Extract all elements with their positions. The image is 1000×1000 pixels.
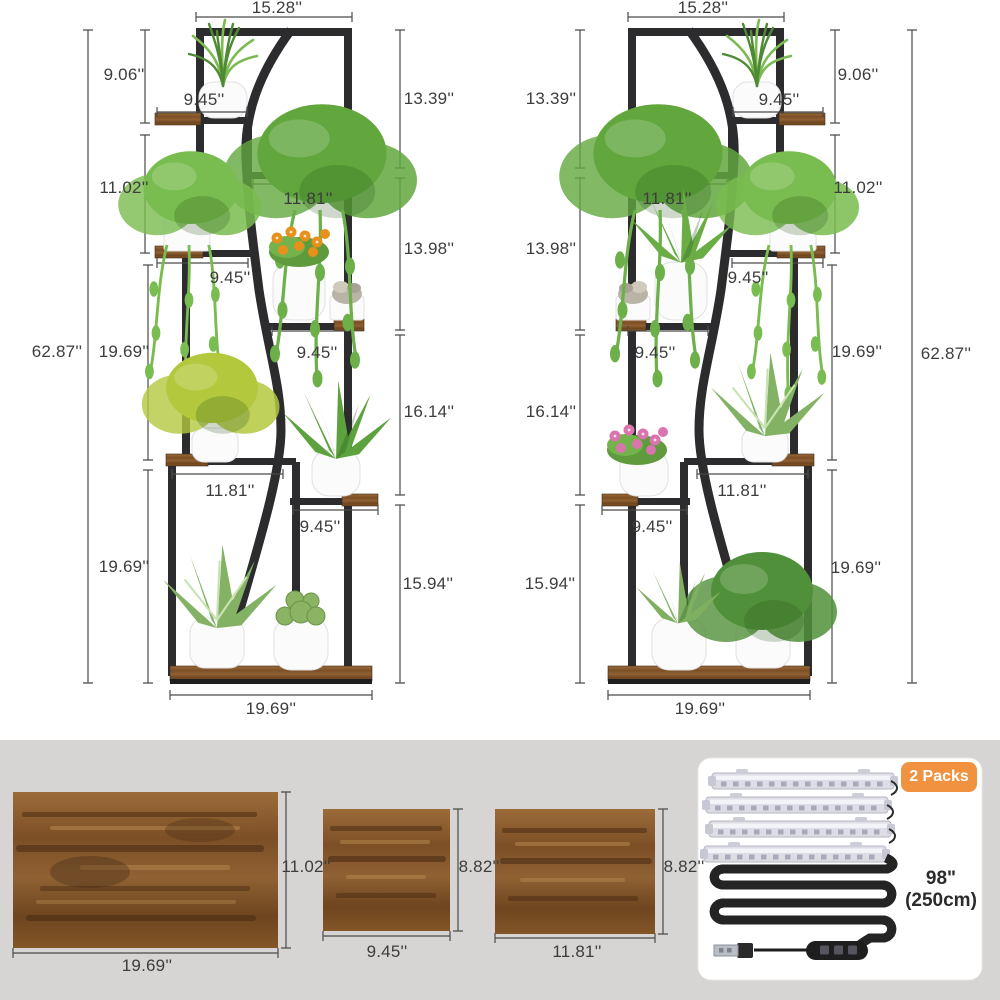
dim-right-tier6-shelf: 9.45'' — [632, 517, 673, 537]
product-dimension-diagram: 15.28'' 9.06'' 9.45'' 13.39'' 11.02'' 11… — [0, 0, 1000, 1000]
dim-right-bottom-outer-tier: 15.94'' — [525, 574, 575, 594]
dim-right-top-width: 15.28'' — [678, 0, 728, 18]
dim-right-lower-tier: 16.14'' — [526, 402, 576, 422]
dim-panel-large-height: 11.02'' — [281, 857, 330, 877]
dim-left-tier5-shelf: 9.45'' — [297, 343, 338, 363]
dim-left-center-tier: 19.69'' — [99, 342, 149, 362]
dim-right-tier5-shelf: 9.45'' — [635, 343, 676, 363]
dim-right-overall-height: 62.87'' — [921, 344, 971, 364]
dim-left-bottom-tier: 19.69'' — [99, 557, 149, 577]
dim-panel-medium-height: 8.82'' — [664, 857, 705, 877]
dim-right-tier5b-shelf: 11.81'' — [717, 481, 766, 501]
dim-left-tier5b-shelf: 11.81'' — [205, 481, 254, 501]
dim-right-bottom-tier: 19.69'' — [831, 558, 881, 578]
pack-count-badge: 2 Packs — [901, 762, 977, 792]
dim-left-upper-tier: 13.39'' — [404, 89, 454, 109]
shelf-panel-large — [13, 792, 278, 948]
dim-left-base-width: 19.69'' — [246, 699, 296, 719]
cable-length-inches: 98" — [926, 868, 956, 890]
dim-panel-small-height: 8.82'' — [459, 857, 500, 877]
cable-length-cm: (250cm) — [905, 890, 977, 912]
shelf-panel-medium — [495, 809, 655, 934]
dim-right-center-tier: 19.69'' — [832, 342, 882, 362]
diagram-illustration — [0, 0, 1000, 1000]
dim-right-middle-tier: 11.02'' — [833, 178, 882, 198]
dim-left-top-width: 15.28'' — [252, 0, 302, 18]
dim-left-tier2-shelf: 9.45'' — [184, 90, 225, 110]
dim-right-tier4-shelf: 9.45'' — [728, 268, 769, 288]
dim-left-lower-middle-tier: 13.98'' — [404, 239, 454, 259]
dim-right-upper-tier: 13.39'' — [526, 89, 576, 109]
dim-right-tier3-shelf: 11.81'' — [642, 189, 691, 209]
dim-left-bottom-outer-tier: 15.94'' — [403, 574, 453, 594]
dim-left-tier4-shelf: 9.45'' — [210, 268, 251, 288]
shelf-panel-small — [323, 809, 450, 931]
dim-panel-medium-width: 11.81'' — [552, 942, 601, 962]
dim-panel-large-width: 19.69'' — [122, 956, 172, 976]
dim-left-top-tier-height: 9.06'' — [104, 65, 145, 85]
dim-right-lower-middle-tier: 13.98'' — [526, 239, 576, 259]
dim-left-overall-height: 62.87'' — [32, 342, 82, 362]
dim-left-tier3-shelf: 11.81'' — [283, 189, 332, 209]
dim-left-lower-tier: 16.14'' — [404, 402, 454, 422]
dim-right-base-width: 19.69'' — [675, 699, 725, 719]
usb-plug-icon — [714, 943, 753, 958]
dim-right-tier2-shelf: 9.45'' — [759, 90, 800, 110]
dim-right-top-tier-height: 9.06'' — [838, 65, 879, 85]
dim-panel-small-width: 9.45'' — [367, 942, 408, 962]
inline-controller — [806, 941, 868, 960]
dim-left-middle-tier: 11.02'' — [99, 178, 148, 198]
dim-left-tier6-shelf: 9.45'' — [300, 517, 341, 537]
